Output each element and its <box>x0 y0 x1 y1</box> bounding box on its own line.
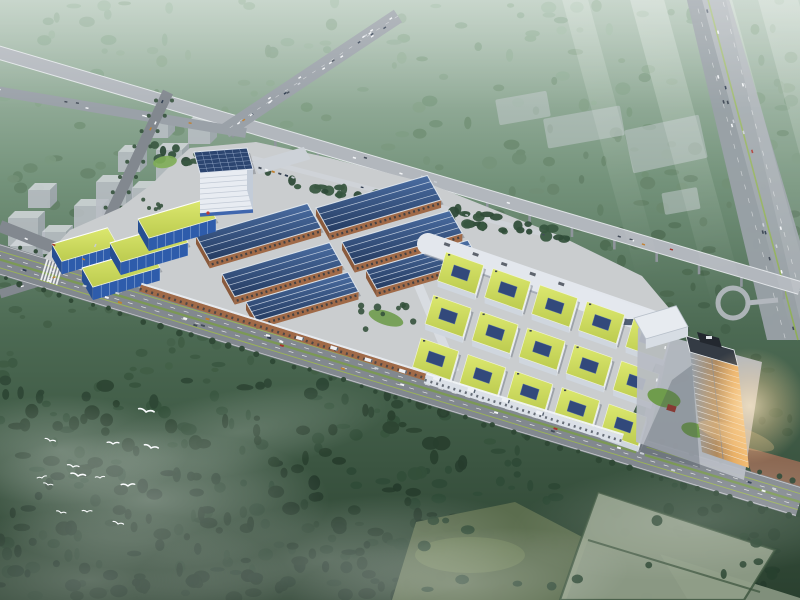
scene-canvas <box>0 0 800 600</box>
aerial-rendering <box>0 0 800 600</box>
headquarters-building <box>194 148 256 215</box>
